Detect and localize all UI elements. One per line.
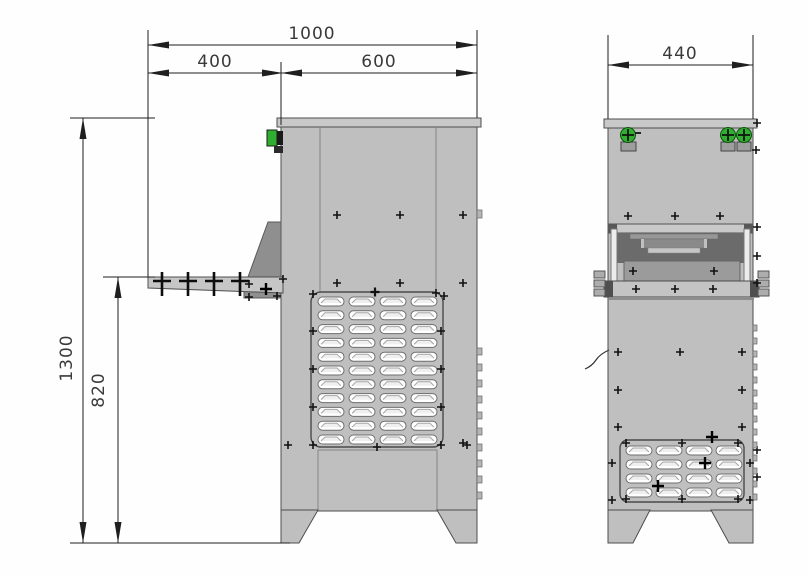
edge-tab bbox=[477, 210, 482, 218]
edge-tab bbox=[477, 412, 482, 419]
edge-tab bbox=[753, 481, 757, 487]
louver-slat-highlight bbox=[719, 448, 739, 452]
edge-tab bbox=[477, 364, 482, 371]
edge-tab bbox=[753, 390, 757, 396]
louver-slat-highlight bbox=[352, 340, 372, 344]
edge-tab bbox=[753, 455, 757, 461]
front-foot-right bbox=[711, 510, 753, 543]
edge-tab bbox=[753, 351, 757, 357]
louver-slat-highlight bbox=[659, 490, 679, 494]
side-tabs-left bbox=[594, 271, 605, 296]
louver-slat-highlight bbox=[321, 382, 341, 386]
edge-tab bbox=[477, 492, 482, 499]
inner-fixture-bar bbox=[630, 234, 718, 239]
louver-slat-highlight bbox=[719, 462, 739, 466]
dim-label-body-width: 440 bbox=[662, 44, 697, 64]
side-foot-left bbox=[281, 510, 318, 543]
louver-slat-highlight bbox=[689, 448, 709, 452]
louver-slat-highlight bbox=[719, 476, 739, 480]
fixture-light-bar bbox=[648, 248, 700, 253]
louver-slat-highlight bbox=[383, 299, 403, 303]
front-foot-left bbox=[608, 510, 650, 543]
louver-slat-highlight bbox=[414, 423, 434, 427]
louver-slat-highlight bbox=[383, 354, 403, 358]
green-connector-side bbox=[267, 130, 277, 146]
connector-black-cap bbox=[277, 131, 283, 145]
dim-label-total-height: 1300 bbox=[57, 334, 77, 381]
louver-slat-highlight bbox=[321, 423, 341, 427]
louver-slat-highlight bbox=[321, 409, 341, 413]
louver-slat-highlight bbox=[414, 327, 434, 331]
louver-slat-highlight bbox=[414, 409, 434, 413]
edge-tab bbox=[753, 377, 757, 383]
louver-slat-highlight bbox=[383, 437, 403, 441]
louver-slat-highlight bbox=[321, 299, 341, 303]
front-top-cap bbox=[604, 119, 757, 128]
edge-tab bbox=[477, 444, 482, 451]
louver-slat-highlight bbox=[321, 313, 341, 317]
dim-label-shelf-height: 820 bbox=[89, 372, 109, 407]
louver-slat-highlight bbox=[321, 354, 341, 358]
edge-tab bbox=[477, 380, 482, 387]
louver-slat-highlight bbox=[321, 437, 341, 441]
opening-lintel bbox=[608, 224, 753, 233]
louver-slat-highlight bbox=[352, 354, 372, 358]
louver-slat-highlight bbox=[383, 396, 403, 400]
louver-slat-highlight bbox=[383, 313, 403, 317]
louver-slat-highlight bbox=[321, 327, 341, 331]
louver-slat-highlight bbox=[383, 409, 403, 413]
louver-slat-highlight bbox=[629, 476, 649, 480]
edge-tab bbox=[753, 442, 757, 448]
opening-bottom-bar bbox=[604, 281, 759, 297]
louver-slat-highlight bbox=[321, 396, 341, 400]
louver-slat-highlight bbox=[414, 340, 434, 344]
feed-opening bbox=[594, 224, 769, 300]
louver-slat-highlight bbox=[352, 396, 372, 400]
edge-tab bbox=[477, 428, 482, 435]
louver-slat-highlight bbox=[659, 476, 679, 480]
screw-cross bbox=[753, 223, 761, 231]
guide-rail-right bbox=[744, 229, 750, 281]
drawing-canvas: 1000 400 600 440 1300 820 bbox=[0, 0, 808, 576]
louver-slat-highlight bbox=[629, 448, 649, 452]
louver-slat-highlight bbox=[321, 368, 341, 372]
louver-slat-highlight bbox=[383, 327, 403, 331]
louver-slat-highlight bbox=[352, 299, 372, 303]
louver-slat-highlight bbox=[383, 340, 403, 344]
louver-slat-highlight bbox=[414, 354, 434, 358]
louver-slat-highlight bbox=[352, 313, 372, 317]
louver-slat-highlight bbox=[383, 423, 403, 427]
opening-mid-plate bbox=[624, 261, 740, 281]
louver-slat-highlight bbox=[629, 490, 649, 494]
side-foot-right bbox=[437, 510, 477, 543]
louver-slat-highlight bbox=[383, 382, 403, 386]
edge-tab bbox=[753, 416, 757, 422]
edge-tab bbox=[753, 325, 757, 331]
louver-slat-highlight bbox=[352, 368, 372, 372]
edge-tab bbox=[477, 396, 482, 403]
edge-tab bbox=[753, 468, 757, 474]
louver-slat-highlight bbox=[352, 423, 372, 427]
dim-label-total-depth: 1000 bbox=[288, 24, 335, 44]
dim-label-shelf-overhang: 400 bbox=[197, 52, 232, 72]
edge-tab bbox=[753, 338, 757, 344]
wire-lead bbox=[585, 350, 609, 369]
louver-slat-highlight bbox=[719, 490, 739, 494]
louver-slat-highlight bbox=[414, 437, 434, 441]
screw-cross bbox=[753, 252, 761, 260]
louver-slat-highlight bbox=[383, 368, 403, 372]
louver-slat-highlight bbox=[659, 462, 679, 466]
edge-tab bbox=[753, 429, 757, 435]
louver-slat-highlight bbox=[689, 476, 709, 480]
louver-slat-highlight bbox=[414, 396, 434, 400]
louver-slat-highlight bbox=[414, 313, 434, 317]
louver-slat-highlight bbox=[629, 462, 649, 466]
edge-tab bbox=[753, 364, 757, 370]
louver-slat-highlight bbox=[659, 448, 679, 452]
inner-fixture-plate bbox=[641, 239, 707, 248]
louver-slat-highlight bbox=[352, 409, 372, 413]
louver-slat-highlight bbox=[414, 299, 434, 303]
louver-slat-highlight bbox=[321, 340, 341, 344]
louver-slat-highlight bbox=[414, 368, 434, 372]
louver-slat-highlight bbox=[352, 327, 372, 331]
edge-tab bbox=[477, 348, 482, 355]
edge-tab bbox=[753, 403, 757, 409]
dim-label-body-depth: 600 bbox=[361, 52, 396, 72]
bar-under-strip bbox=[609, 297, 754, 300]
technical-drawing: 1000 400 600 440 1300 820 bbox=[0, 0, 808, 576]
guide-rail-left bbox=[611, 229, 617, 281]
louver-slat-highlight bbox=[689, 490, 709, 494]
work-shelf bbox=[148, 277, 283, 293]
connector-nub bbox=[274, 146, 283, 153]
fixture-tick-right bbox=[704, 239, 707, 248]
edge-tab bbox=[477, 460, 482, 467]
louver-slat-highlight bbox=[414, 382, 434, 386]
louver-slat-highlight bbox=[352, 437, 372, 441]
louver-slat-highlight bbox=[352, 382, 372, 386]
side-top-cap bbox=[277, 118, 481, 127]
edge-tab bbox=[753, 494, 757, 500]
edge-tab bbox=[477, 476, 482, 483]
fixture-tick-left bbox=[641, 239, 644, 248]
